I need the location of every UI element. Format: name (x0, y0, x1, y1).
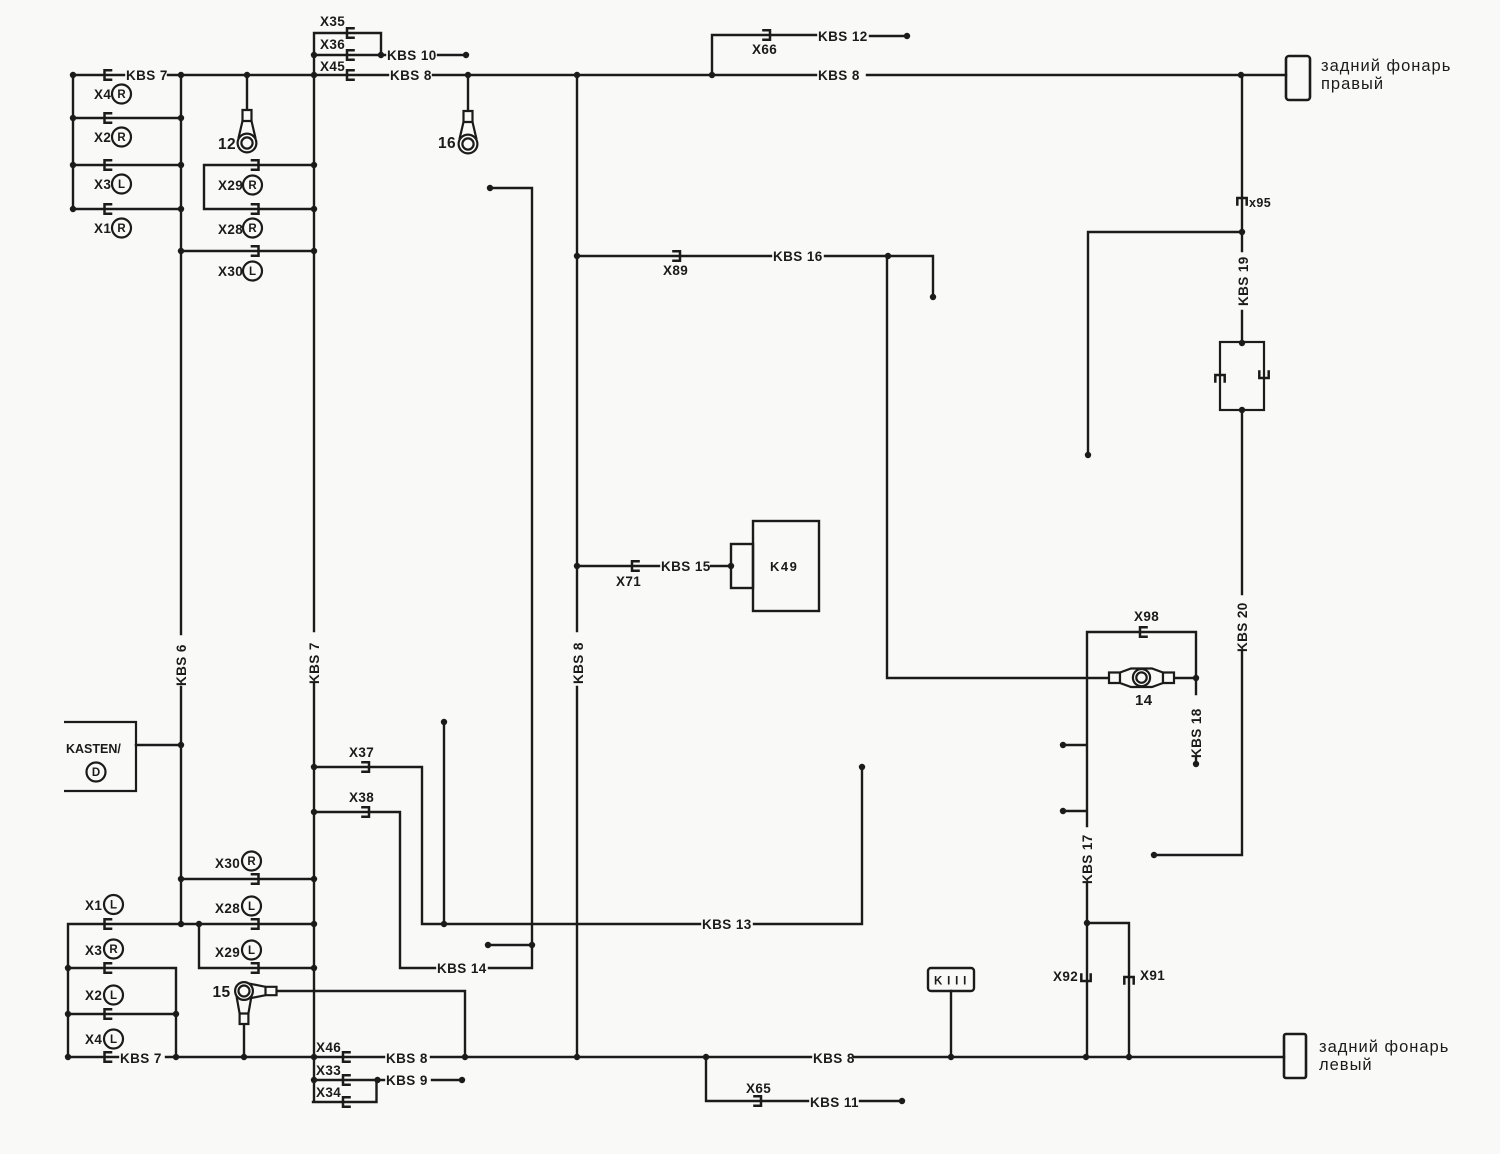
svg-text:X28: X28 (218, 222, 243, 237)
svg-text:KBS 10: KBS 10 (387, 48, 437, 63)
svg-text:X29: X29 (215, 945, 240, 960)
svg-text:KBS 8: KBS 8 (386, 1051, 428, 1066)
svg-text:X29: X29 (218, 178, 243, 193)
svg-text:X34: X34 (316, 1085, 341, 1100)
svg-text:X38: X38 (349, 790, 374, 805)
svg-text:R: R (117, 89, 126, 101)
svg-text:KBS 7: KBS 7 (307, 642, 322, 684)
svg-text:X28: X28 (215, 901, 240, 916)
svg-text:KBS 15: KBS 15 (661, 559, 711, 574)
svg-text:L: L (248, 901, 255, 913)
svg-text:L: L (118, 179, 125, 191)
svg-text:X3: X3 (85, 943, 102, 958)
svg-text:X91: X91 (1140, 968, 1165, 983)
svg-text:X2: X2 (94, 130, 111, 145)
svg-text:KBS 7: KBS 7 (126, 68, 168, 83)
svg-text:KBS 20: KBS 20 (1235, 602, 1250, 652)
svg-text:L: L (110, 1034, 117, 1046)
svg-text:KBS 7: KBS 7 (120, 1051, 162, 1066)
svg-text:R: R (117, 223, 126, 235)
svg-text:L: L (248, 945, 255, 957)
svg-text:KBS 9: KBS 9 (386, 1073, 428, 1088)
svg-text:12: 12 (218, 136, 236, 153)
svg-text:KBS 8: KBS 8 (818, 68, 860, 83)
svg-text:R: R (247, 856, 256, 868)
svg-text:X4: X4 (85, 1032, 102, 1047)
svg-text:KBS 8: KBS 8 (390, 68, 432, 83)
svg-text:левый: левый (1319, 1056, 1373, 1074)
svg-text:KBS 18: KBS 18 (1189, 708, 1204, 758)
svg-text:X30: X30 (215, 856, 240, 871)
svg-text:X66: X66 (752, 42, 777, 57)
svg-text:X46: X46 (316, 1040, 341, 1055)
svg-text:X36: X36 (320, 37, 345, 52)
svg-text:R: R (109, 944, 118, 956)
svg-text:задний фонарь: задний фонарь (1319, 1038, 1449, 1056)
svg-text:KBS 14: KBS 14 (437, 961, 487, 976)
svg-text:L: L (249, 266, 256, 278)
svg-text:правый: правый (1321, 75, 1384, 93)
svg-text:X71: X71 (616, 574, 641, 589)
svg-text:x95: x95 (1249, 196, 1271, 210)
svg-text:K49: K49 (770, 559, 798, 574)
svg-text:L: L (110, 990, 117, 1002)
svg-text:X1: X1 (85, 898, 102, 913)
svg-text:R: R (248, 223, 257, 235)
svg-text:L: L (110, 900, 117, 912)
svg-text:X1: X1 (94, 221, 111, 236)
svg-text:X89: X89 (663, 263, 688, 278)
svg-text:X33: X33 (316, 1063, 341, 1078)
svg-text:X4: X4 (94, 87, 111, 102)
svg-text:K I I I: K I I I (934, 976, 967, 988)
svg-text:KBS 17: KBS 17 (1080, 834, 1095, 884)
svg-text:X2: X2 (85, 988, 102, 1003)
svg-text:X98: X98 (1134, 609, 1159, 624)
svg-text:X92: X92 (1053, 969, 1078, 984)
svg-text:KBS 6: KBS 6 (174, 644, 189, 686)
svg-text:16: 16 (438, 135, 456, 152)
svg-text:X30: X30 (218, 264, 243, 279)
svg-text:KASTEN/: KASTEN/ (66, 742, 121, 756)
svg-text:KBS 12: KBS 12 (818, 29, 868, 44)
svg-text:X3: X3 (94, 177, 111, 192)
svg-text:D: D (92, 767, 100, 779)
svg-text:14: 14 (1135, 692, 1153, 709)
svg-text:KBS 11: KBS 11 (810, 1095, 859, 1110)
svg-text:KBS 16: KBS 16 (773, 249, 823, 264)
svg-text:X45: X45 (320, 59, 345, 74)
svg-text:X35: X35 (320, 14, 345, 29)
svg-text:X37: X37 (349, 745, 374, 760)
svg-text:KBS 19: KBS 19 (1236, 256, 1251, 306)
svg-text:KBS 8: KBS 8 (813, 1051, 855, 1066)
svg-text:KBS 13: KBS 13 (702, 917, 752, 932)
svg-text:R: R (117, 132, 126, 144)
svg-text:15: 15 (213, 984, 231, 1001)
svg-text:задний фонарь: задний фонарь (1321, 57, 1451, 75)
svg-text:X65: X65 (746, 1081, 771, 1096)
svg-text:R: R (248, 180, 257, 192)
svg-text:KBS 8: KBS 8 (571, 642, 586, 684)
